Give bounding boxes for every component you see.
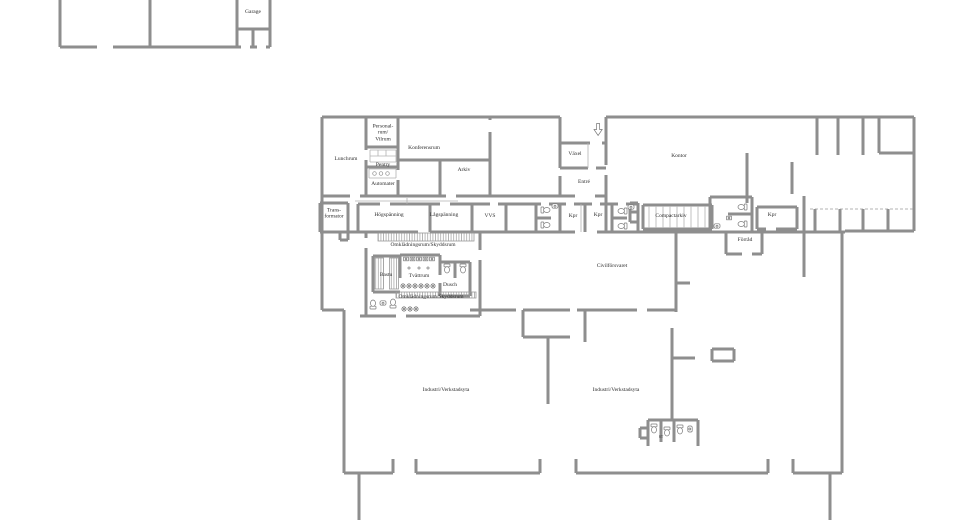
floor-plan-drawing <box>0 0 976 520</box>
walls-layer <box>60 0 914 520</box>
entrance-arrow-icon <box>594 124 602 136</box>
floor-plan-canvas: Garage Lunchrum Personal- rum/ Vilrum Pe… <box>0 0 976 520</box>
vending-machines <box>373 172 390 176</box>
